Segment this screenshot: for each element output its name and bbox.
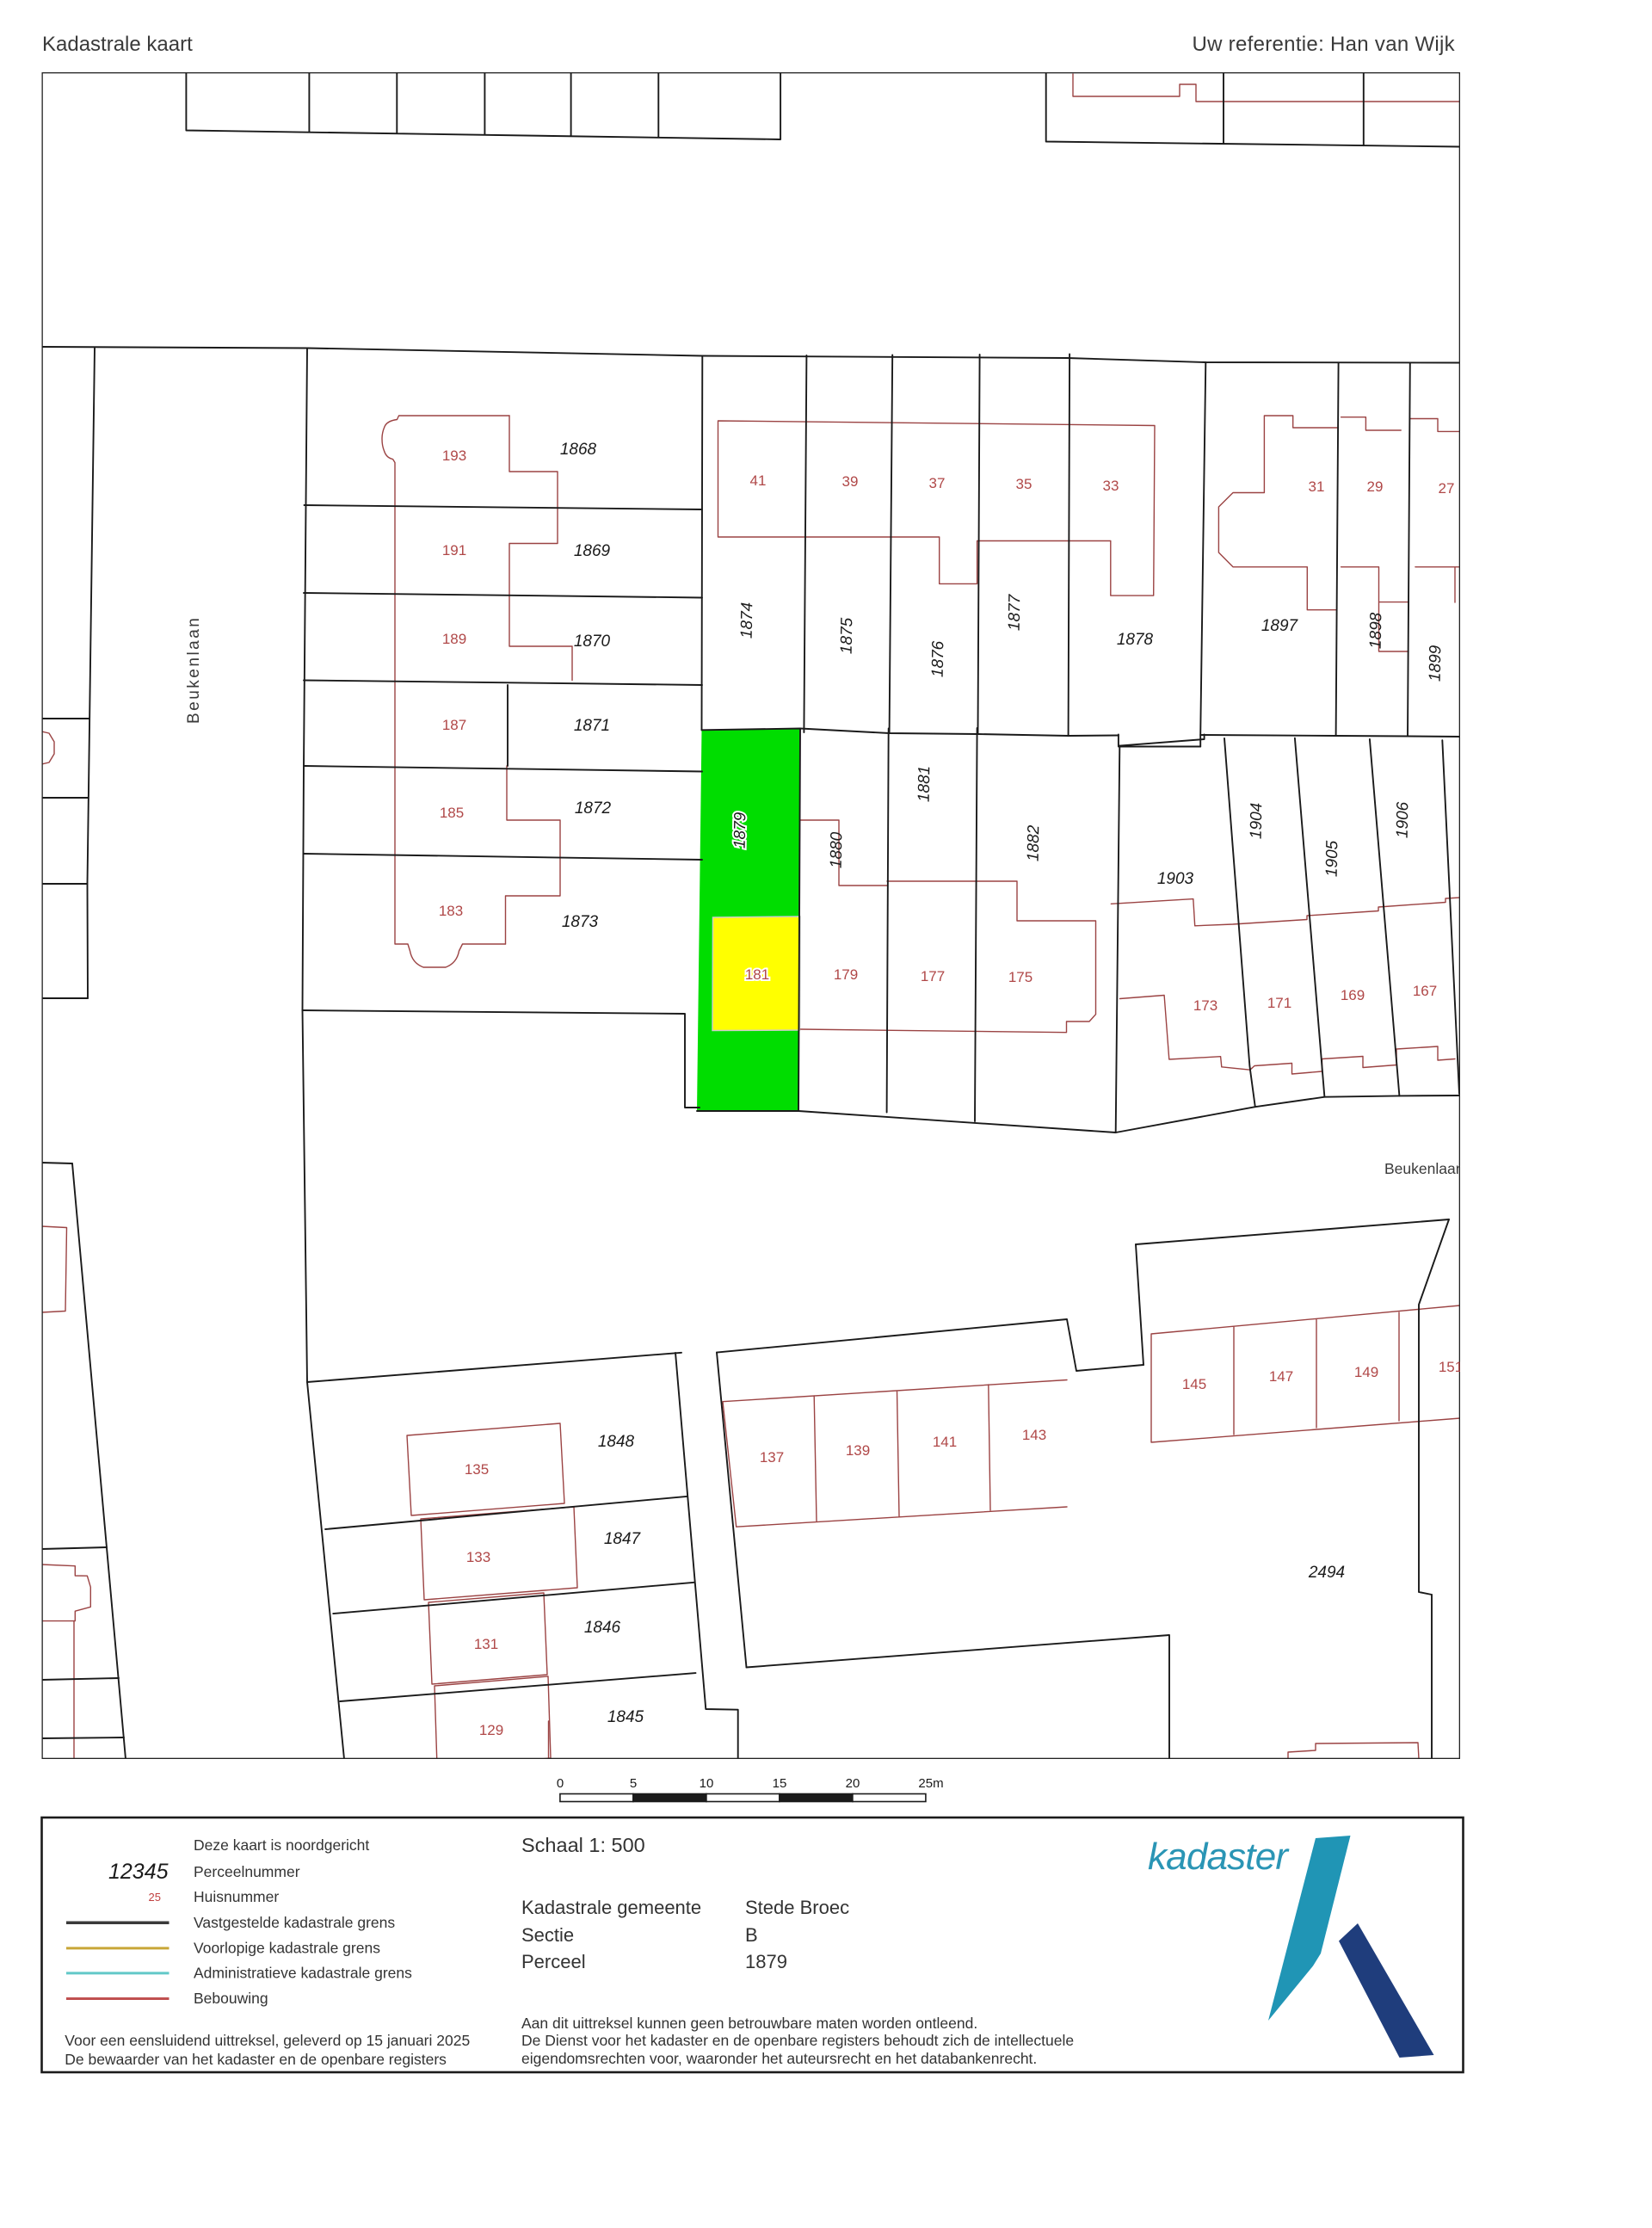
svg-text:33: 33 bbox=[1103, 478, 1119, 494]
svg-text:171: 171 bbox=[1267, 995, 1291, 1011]
svg-text:185: 185 bbox=[440, 805, 464, 821]
svg-text:1880: 1880 bbox=[828, 831, 847, 868]
svg-text:1873: 1873 bbox=[562, 913, 599, 931]
svg-text:Kadastrale gemeente: Kadastrale gemeente bbox=[521, 1897, 701, 1918]
svg-text:Voorlopige kadastrale grens: Voorlopige kadastrale grens bbox=[194, 1940, 380, 1957]
svg-text:1881: 1881 bbox=[915, 766, 934, 803]
svg-text:20: 20 bbox=[846, 1776, 860, 1791]
svg-text:Administratieve kadastrale gre: Administratieve kadastrale grens bbox=[194, 1965, 412, 1982]
svg-text:193: 193 bbox=[442, 447, 466, 464]
svg-text:1846: 1846 bbox=[584, 1619, 621, 1637]
svg-text:41: 41 bbox=[750, 472, 767, 489]
svg-text:27: 27 bbox=[1439, 480, 1455, 497]
svg-text:37: 37 bbox=[929, 475, 946, 491]
svg-text:1899: 1899 bbox=[1427, 645, 1445, 682]
svg-text:Voor een eensluidend uittrekse: Voor een eensluidend uittreksel, gelever… bbox=[65, 2032, 470, 2049]
svg-text:1870: 1870 bbox=[574, 633, 611, 651]
svg-text:25m: 25m bbox=[918, 1776, 943, 1791]
svg-text:1848: 1848 bbox=[598, 1433, 635, 1451]
svg-text:129: 129 bbox=[479, 1722, 503, 1738]
svg-text:1876: 1876 bbox=[929, 640, 948, 677]
svg-text:1904: 1904 bbox=[1248, 803, 1267, 840]
svg-text:De bewaarder van het kadaster: De bewaarder van het kadaster en de open… bbox=[65, 2051, 447, 2068]
svg-text:1877: 1877 bbox=[1006, 593, 1025, 631]
svg-text:1878: 1878 bbox=[1117, 631, 1154, 649]
svg-text:29: 29 bbox=[1367, 478, 1384, 495]
svg-text:Schaal 1: 500: Schaal 1: 500 bbox=[521, 1834, 645, 1856]
svg-text:B: B bbox=[745, 1924, 758, 1946]
svg-text:De Dienst voor het kadaster en: De Dienst voor het kadaster en de openba… bbox=[521, 2032, 1074, 2049]
svg-text:39: 39 bbox=[842, 473, 859, 490]
svg-text:137: 137 bbox=[760, 1449, 784, 1466]
svg-text:135: 135 bbox=[465, 1461, 489, 1478]
svg-text:173: 173 bbox=[1193, 997, 1217, 1014]
svg-text:Sectie: Sectie bbox=[521, 1924, 574, 1946]
svg-text:179: 179 bbox=[834, 966, 858, 983]
svg-text:12345: 12345 bbox=[108, 1860, 169, 1884]
svg-text:131: 131 bbox=[474, 1636, 498, 1652]
svg-text:1879: 1879 bbox=[745, 1951, 787, 1972]
svg-text:177: 177 bbox=[921, 968, 945, 984]
svg-text:Aan dit uittreksel kunnen geen: Aan dit uittreksel kunnen geen betrouwba… bbox=[521, 2015, 977, 2032]
svg-text:139: 139 bbox=[846, 1442, 870, 1459]
svg-text:2494: 2494 bbox=[1308, 1564, 1345, 1582]
svg-text:Kadastrale kaart: Kadastrale kaart bbox=[42, 33, 193, 56]
svg-text:Bebouwing: Bebouwing bbox=[194, 1990, 268, 2007]
svg-text:eigendomsrechten voor, waarond: eigendomsrechten voor, waaronder het aut… bbox=[521, 2050, 1037, 2067]
svg-text:Perceel: Perceel bbox=[521, 1951, 586, 1972]
svg-text:183: 183 bbox=[439, 903, 463, 919]
svg-text:1874: 1874 bbox=[738, 602, 757, 639]
svg-text:1871: 1871 bbox=[574, 717, 610, 735]
svg-text:Huisnummer: Huisnummer bbox=[194, 1888, 279, 1905]
svg-text:1898: 1898 bbox=[1367, 612, 1386, 649]
svg-text:10: 10 bbox=[700, 1776, 714, 1791]
svg-text:167: 167 bbox=[1413, 983, 1437, 999]
svg-text:143: 143 bbox=[1022, 1427, 1046, 1443]
svg-text:147: 147 bbox=[1269, 1368, 1293, 1385]
svg-text:1879: 1879 bbox=[731, 812, 750, 849]
svg-text:149: 149 bbox=[1354, 1364, 1378, 1380]
svg-text:1868: 1868 bbox=[560, 441, 597, 459]
svg-text:187: 187 bbox=[442, 717, 466, 733]
svg-text:0: 0 bbox=[557, 1776, 564, 1791]
svg-text:5: 5 bbox=[630, 1776, 637, 1791]
svg-text:25: 25 bbox=[149, 1891, 161, 1904]
svg-text:1903: 1903 bbox=[1157, 870, 1194, 888]
svg-text:1869: 1869 bbox=[574, 542, 611, 560]
svg-text:Stede Broec: Stede Broec bbox=[745, 1897, 849, 1918]
svg-text:175: 175 bbox=[1008, 969, 1032, 985]
svg-text:Beukenlaan: Beukenlaan bbox=[185, 616, 203, 724]
svg-text:31: 31 bbox=[1309, 478, 1325, 495]
svg-text:189: 189 bbox=[442, 631, 466, 647]
svg-text:1845: 1845 bbox=[607, 1708, 644, 1726]
svg-text:Uw referentie: Han van Wijk: Uw referentie: Han van Wijk bbox=[1192, 33, 1455, 56]
svg-text:1872: 1872 bbox=[575, 799, 612, 818]
svg-text:Deze kaart is noordgericht: Deze kaart is noordgericht bbox=[194, 1836, 369, 1854]
svg-text:141: 141 bbox=[933, 1434, 957, 1450]
svg-text:Beukenlaan: Beukenlaan bbox=[1384, 1160, 1464, 1177]
svg-text:1882: 1882 bbox=[1025, 824, 1044, 861]
svg-text:Perceelnummer: Perceelnummer bbox=[194, 1863, 300, 1880]
svg-text:1897: 1897 bbox=[1261, 617, 1299, 635]
svg-text:191: 191 bbox=[442, 542, 466, 559]
svg-text:1847: 1847 bbox=[604, 1530, 642, 1548]
svg-text:145: 145 bbox=[1182, 1376, 1206, 1392]
svg-text:181: 181 bbox=[745, 966, 769, 983]
svg-text:35: 35 bbox=[1016, 476, 1032, 492]
svg-text:133: 133 bbox=[466, 1549, 490, 1565]
svg-text:15: 15 bbox=[773, 1776, 787, 1791]
svg-text:169: 169 bbox=[1341, 987, 1365, 1003]
svg-text:1905: 1905 bbox=[1323, 840, 1342, 877]
svg-text:1875: 1875 bbox=[838, 617, 857, 654]
svg-text:151: 151 bbox=[1439, 1359, 1463, 1375]
svg-text:Vastgestelde kadastrale grens: Vastgestelde kadastrale grens bbox=[194, 1914, 395, 1931]
svg-text:1906: 1906 bbox=[1394, 801, 1413, 838]
svg-text:kadaster: kadaster bbox=[1148, 1836, 1290, 1878]
